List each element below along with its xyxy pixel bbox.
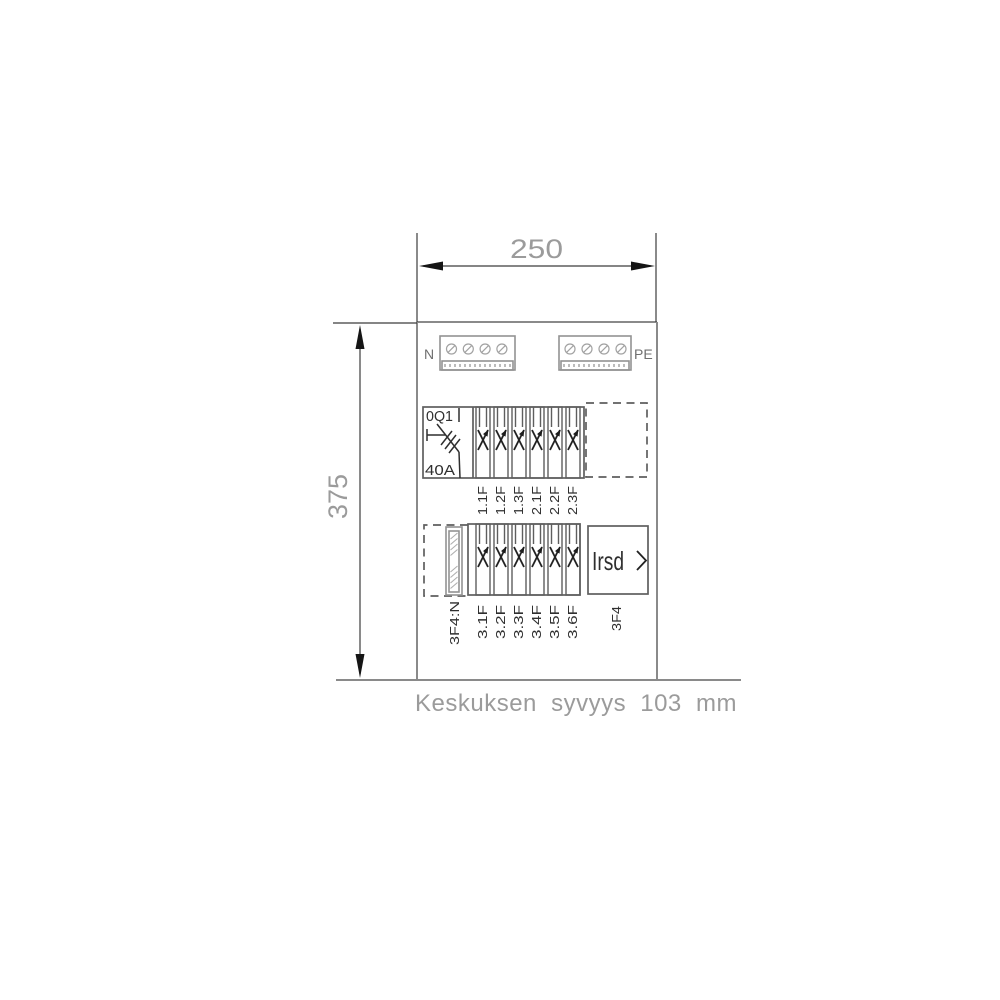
terminal-screw-icon: [565, 344, 626, 354]
pe-terminal-block: PE: [559, 336, 653, 370]
breaker-column: [494, 524, 508, 595]
height-dimension: 375: [323, 323, 417, 678]
dimension-arrow-right-icon: [631, 262, 655, 271]
upper-breaker-labels: 1.1F 1.2F 1.3F 2.1F 2.2F 2.3F: [475, 486, 580, 515]
breaker-label: 3.6F: [565, 605, 580, 639]
breaker-label: 3.5F: [547, 605, 562, 639]
rcd-device-text: Irsd: [592, 546, 624, 576]
neutral-terminal-label: N: [424, 346, 434, 362]
upper-device-row: 0Q1 40A: [423, 403, 647, 479]
breaker-column: [530, 407, 544, 478]
main-switch-rating: 40A: [425, 462, 455, 479]
pe-terminal-label: PE: [634, 346, 653, 362]
breaker-label: 3.3F: [511, 605, 526, 639]
breaker-label: 3.2F: [493, 605, 508, 639]
terminal-strip-hatch: [451, 533, 458, 589]
breaker-column: [566, 524, 580, 595]
terminal-screw-icon: [447, 344, 507, 354]
main-switch-designation: 0Q1: [426, 408, 453, 425]
width-dimension: 250: [417, 233, 656, 322]
breaker-column: [476, 407, 490, 478]
breaker-column: [476, 524, 490, 595]
width-dimension-value: 250: [510, 234, 563, 264]
height-dimension-value: 375: [323, 474, 353, 519]
depth-caption: Keskuksen syvyys 103 mm: [415, 690, 737, 717]
breaker-label: 2.3F: [565, 486, 580, 515]
lower-terminal-strip: [446, 527, 462, 595]
terminal-rail: [442, 361, 513, 370]
breaker-column: [530, 524, 544, 595]
reserved-space-upper: [586, 403, 647, 477]
dimension-arrow-up-icon: [356, 325, 365, 349]
breaker-label: 3.4F: [529, 605, 544, 639]
chevron-right-icon: [637, 551, 646, 570]
breaker-label: 1.1F: [475, 486, 490, 515]
breaker-column: [494, 407, 508, 478]
dimension-arrow-down-icon: [356, 654, 365, 678]
breaker-label: 2.1F: [529, 486, 544, 515]
breaker-label: 1.2F: [493, 486, 508, 515]
rcd-device-box: Irsd: [588, 526, 648, 594]
lower-device-row: Irsd: [424, 524, 648, 596]
lower-group-label: 3F4: [609, 606, 624, 631]
breaker-column: [566, 407, 580, 478]
breaker-label: 1.3F: [511, 486, 526, 515]
panel-dimension-diagram: 250 375 N PE: [0, 0, 1000, 1000]
breaker-column: [548, 524, 562, 595]
drawing-sheet: 250 375 N PE: [0, 0, 1000, 1000]
breaker-label: 3.1F: [475, 605, 490, 639]
breaker-column: [512, 524, 526, 595]
breaker-column: [548, 407, 562, 478]
breaker-label: 2.2F: [547, 486, 562, 515]
main-switch: 0Q1 40A: [425, 407, 473, 479]
neutral-terminal-block: N: [424, 336, 515, 370]
dimension-arrow-left-icon: [419, 262, 443, 271]
lower-breaker-labels: 3F4:N 3.1F 3.2F 3.3F 3.4F 3.5F 3.6F 3F4: [447, 601, 624, 645]
lower-strip-label: 3F4:N: [447, 601, 462, 645]
breaker-column: [512, 407, 526, 478]
